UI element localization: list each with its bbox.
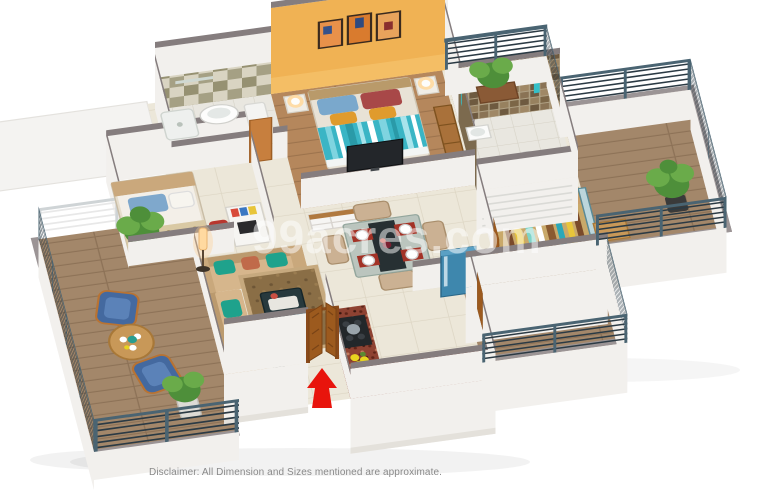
bathroom1-south-wall-jamb [273,125,288,159]
disclaimer-text: Disclaimer: All Dimension and Sizes ment… [149,467,442,478]
floorplan-page: 99acres.com Disclaimer: All Dimension an… [0,0,780,490]
floorplan-3d-render [0,0,780,490]
